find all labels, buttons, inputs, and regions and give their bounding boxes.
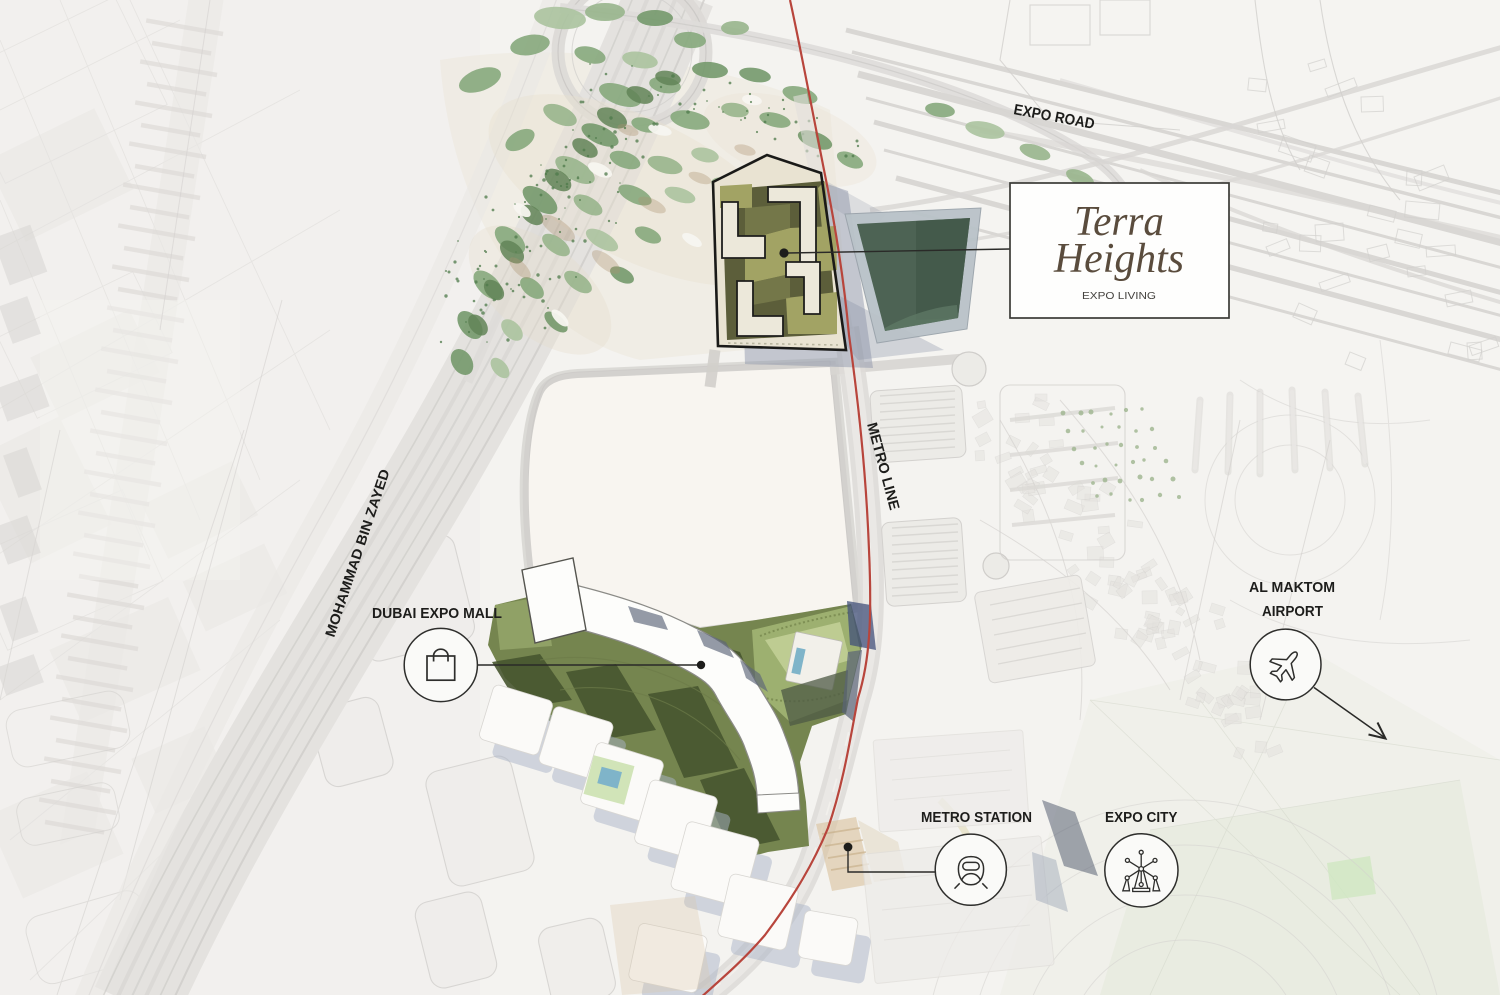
- svg-text:METRO STATION: METRO STATION: [921, 810, 1032, 826]
- svg-text:DUBAI EXPO MALL: DUBAI EXPO MALL: [372, 605, 502, 622]
- svg-text:AIRPORT: AIRPORT: [1262, 603, 1323, 620]
- svg-text:Heights: Heights: [1053, 236, 1184, 282]
- svg-text:EXPO CITY: EXPO CITY: [1105, 810, 1178, 826]
- svg-text:AL MAKTOM: AL MAKTOM: [1249, 579, 1335, 596]
- svg-text:EXPO LIVING: EXPO LIVING: [1082, 290, 1156, 302]
